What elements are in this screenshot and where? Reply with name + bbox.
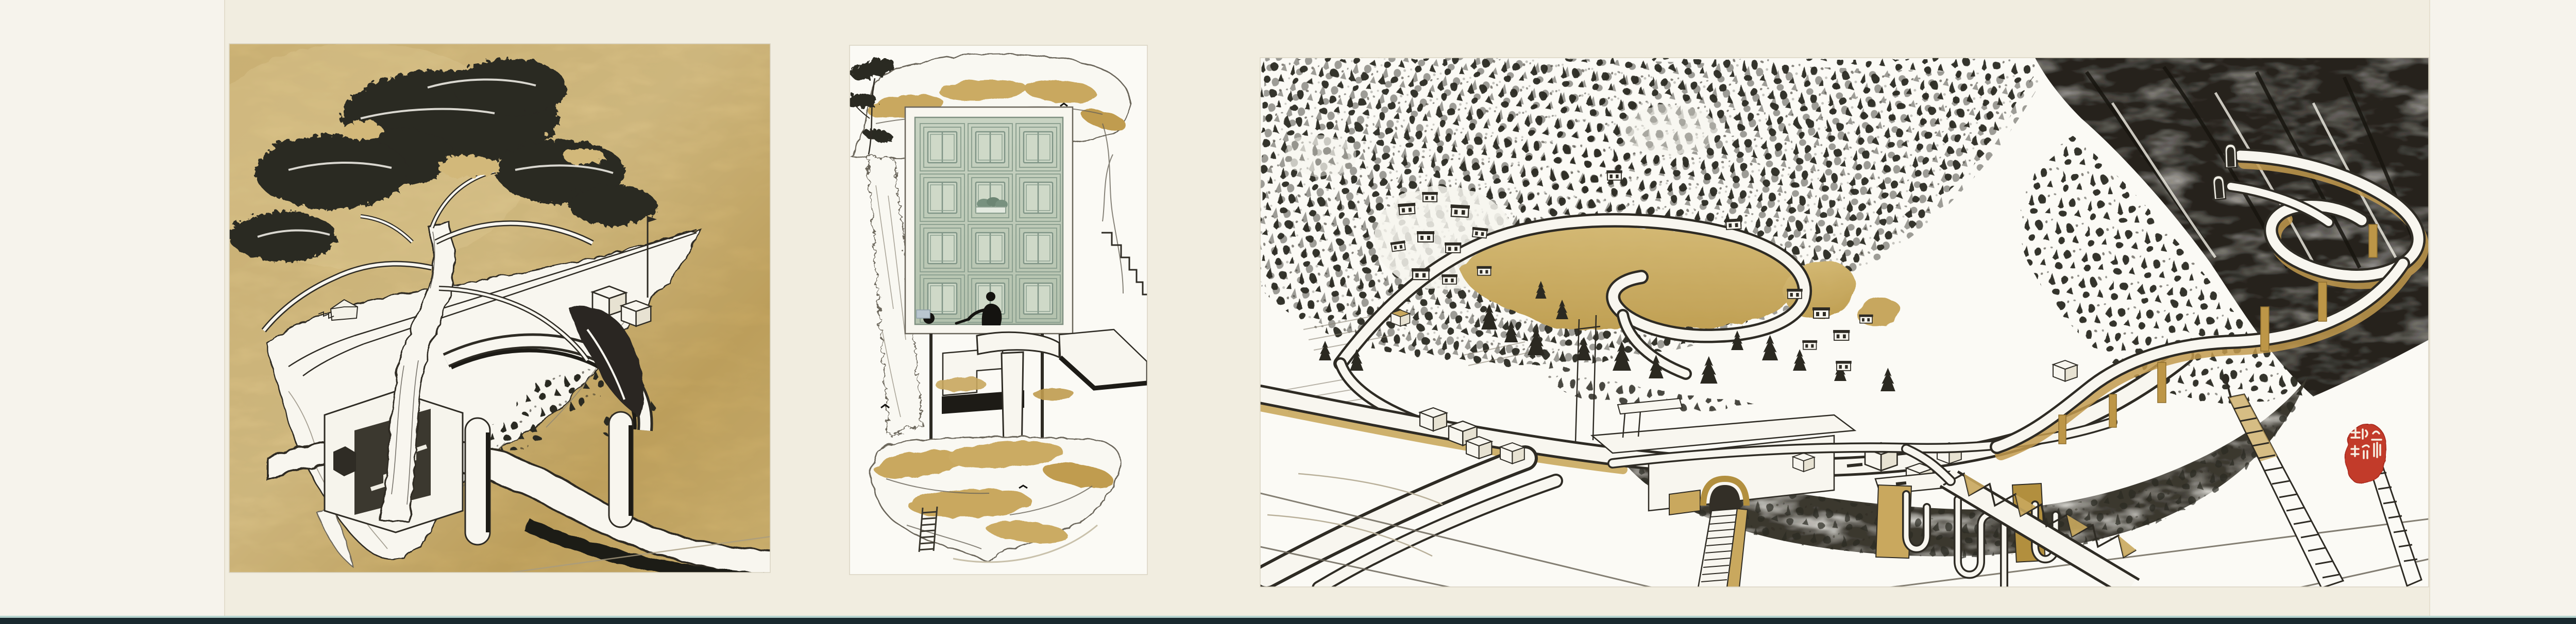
scroll-bottom-border — [0, 616, 2576, 624]
white-box — [621, 301, 651, 326]
mountain-village-panel — [1255, 48, 2429, 594]
artwork-canvas — [0, 0, 2576, 624]
border-dark-bar — [0, 618, 2576, 624]
tunnel-portal — [2225, 144, 2237, 168]
tunnel-portal — [2212, 175, 2226, 200]
hex-opening — [334, 447, 355, 476]
pale-blue-object — [917, 310, 930, 318]
handscroll-artwork — [0, 0, 2576, 624]
gold-ledge — [934, 376, 985, 390]
pine-cliff-panel — [191, 41, 771, 579]
paper-right-margin — [2430, 0, 2576, 624]
border-teal-line — [0, 616, 2576, 618]
paper-left-margin — [0, 0, 225, 624]
gold-ledge — [1031, 386, 1073, 398]
facade-rock-panel — [843, 45, 1148, 575]
green-facade-assembly — [905, 107, 1073, 334]
